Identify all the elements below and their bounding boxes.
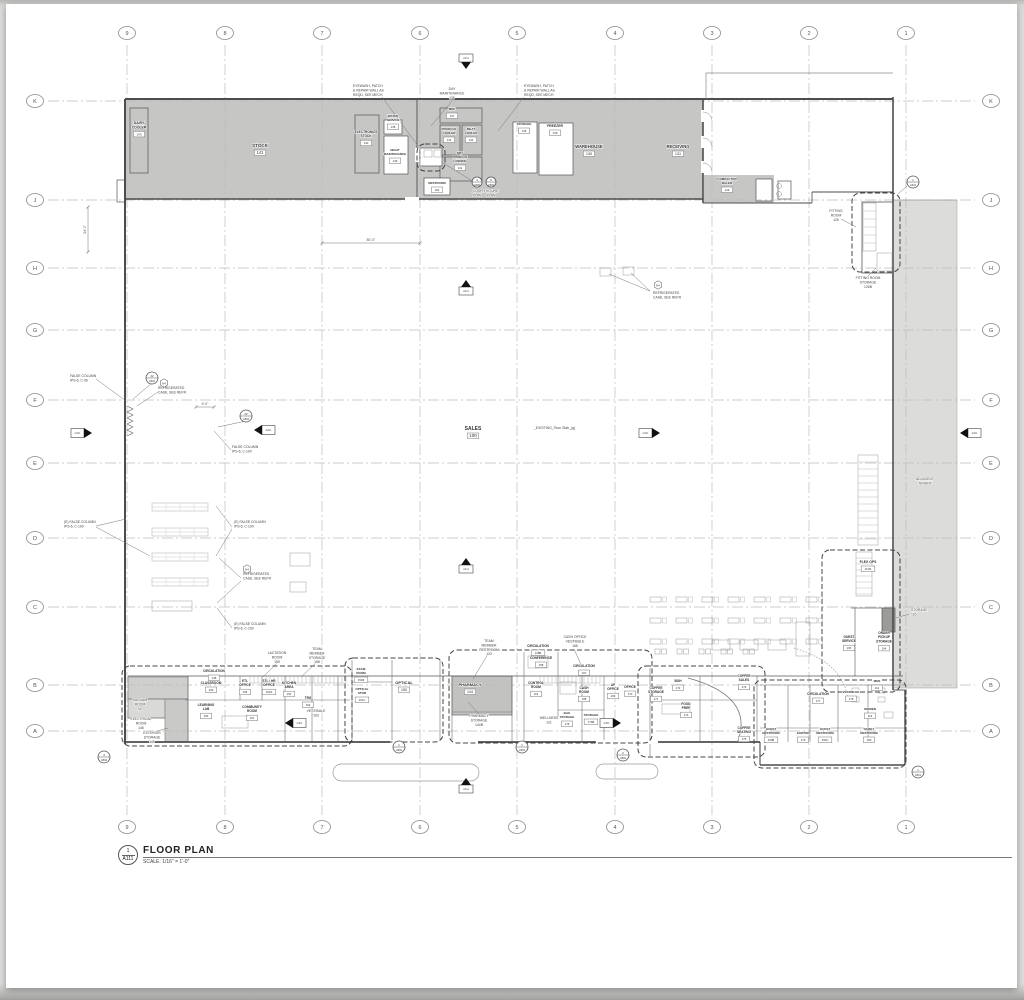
room-number: 174	[742, 685, 747, 689]
elevation-marker-ref: A201	[74, 431, 81, 435]
leader-line	[216, 529, 232, 556]
checklane-fixture	[754, 597, 765, 602]
room-number: 162	[306, 703, 311, 707]
elevation-marker-arrow	[285, 718, 293, 728]
grid-bubble-bottom-3-label: 3	[710, 825, 713, 831]
room-label: STORAGE	[584, 713, 599, 717]
room-label: CIRCULATION	[527, 644, 549, 648]
room-number: 145	[522, 129, 527, 133]
grid-bubble-bottom-5-label: 5	[515, 825, 518, 831]
room-number: 141	[257, 150, 265, 155]
checklane-fixture	[702, 639, 713, 644]
room-label: SEATING	[737, 730, 751, 734]
section-marker-ref: A311	[463, 289, 469, 293]
annotation-note: EYEWASH, PATCH	[524, 84, 554, 88]
drawing-scale: SCALE: 1/16" = 1'-0"	[143, 859, 1012, 865]
checklane-fixture	[702, 618, 713, 623]
annotation-note: MEMBER	[310, 651, 325, 655]
room-number: 143	[136, 132, 141, 136]
leader-line	[841, 219, 856, 227]
annotation-note: PLAN	[487, 193, 496, 197]
furniture-fixture	[740, 640, 758, 650]
furniture-fixture	[878, 697, 885, 702]
section-marker-arrow	[461, 280, 471, 287]
room-label: RESTROOM	[762, 731, 780, 735]
room-number: 175	[742, 737, 747, 741]
checklane-fixture	[715, 597, 719, 602]
annotation-note: VACUUM	[133, 698, 148, 702]
leader-line	[214, 431, 231, 450]
keynote-text: N4	[162, 381, 166, 385]
checklane-fixture	[728, 618, 739, 623]
annotation-note: FITTING ROOM	[856, 276, 881, 280]
room-label: VESTIBULE	[843, 690, 860, 694]
room-label: RESTROOM	[816, 731, 834, 735]
annotation-note: CASE, SEE REFR	[158, 390, 187, 394]
annotation-note: 166	[572, 644, 578, 648]
elevation-marker-arrow	[254, 425, 262, 435]
detail-callout-sheet: A502	[620, 756, 627, 760]
grid-bubble-top-6-label: 6	[418, 31, 421, 37]
annotation-note: & REPAIR WALL AS	[353, 88, 385, 92]
detail-callout-sheet: A341	[910, 183, 917, 187]
wall-opening	[596, 740, 658, 744]
area-fill	[130, 108, 148, 173]
room-number: 135	[552, 131, 557, 135]
room-label: STORAGE	[517, 122, 532, 126]
checklane-fixture	[689, 597, 693, 602]
room-number: 133	[447, 138, 452, 142]
queue-fixture	[706, 649, 711, 654]
room-label: FLEX OPS	[860, 560, 878, 564]
leader-line	[218, 421, 246, 427]
room-label: STOCK	[252, 143, 268, 148]
detail-callout-number: 22	[150, 374, 154, 378]
room-label: STORAGE	[560, 715, 575, 719]
checklane-fixture	[767, 597, 771, 602]
grid-bubble-bottom-6-label: 6	[418, 825, 421, 831]
grid-bubble-left-D-label: D	[33, 536, 37, 542]
checklane-fixture	[650, 639, 661, 644]
checklane-fixture	[715, 618, 719, 623]
detail-number: 1	[127, 849, 130, 854]
detail-callout-sheet: A502	[149, 379, 156, 383]
annotation-note: IPS-6, C-100	[234, 524, 254, 528]
dimension-text: 34'-0"	[83, 224, 87, 233]
grid-bubble-right-G-label: G	[989, 328, 993, 334]
checklane-fixture	[689, 639, 693, 644]
furniture-fixture	[884, 712, 893, 718]
room-number: 129	[725, 188, 730, 192]
grid-bubble-top-1-label: 1	[904, 31, 907, 37]
scale-label: SCALE:	[143, 859, 161, 865]
checklane-fixture	[754, 618, 765, 623]
room-label: SERVICE	[842, 639, 856, 643]
queue-fixture	[699, 649, 704, 654]
area-fill	[894, 200, 957, 688]
room-number: 165	[847, 646, 852, 650]
checklane-fixture	[780, 597, 791, 602]
checklane-fixture	[728, 597, 739, 602]
annotation-note: WELLNESS	[540, 716, 559, 720]
room-label: CLASSROOM	[201, 681, 222, 685]
room-label: PREP	[682, 706, 692, 710]
room-label: LAB	[203, 707, 210, 711]
room-number: 164	[882, 646, 887, 650]
room-number: 169	[611, 694, 616, 698]
queue-fixture	[662, 649, 667, 654]
leader-line	[217, 581, 241, 603]
annotation-note: PLAN	[473, 193, 482, 197]
room-number: 171	[654, 697, 659, 701]
annotation-note: _EXISTING_Floor Slab_(g)	[533, 426, 575, 430]
annotation-note: 159	[274, 660, 280, 664]
room-label: LANDING	[453, 159, 467, 163]
grid-bubble-right-B-label: B	[989, 683, 993, 689]
grid-bubble-bottom-9-label: 9	[125, 825, 128, 831]
grid-bubble-left-H-label: H	[33, 266, 37, 272]
annotation-note: VESTIBULE	[566, 639, 585, 643]
room-number: 167	[582, 671, 587, 675]
room-label: OPTICAL	[395, 680, 413, 685]
grid-bubble-top-9-label: 9	[125, 31, 128, 37]
title-block: 1 A111 FLOOR PLAN SCALE: 1/16" = 1'-0"	[118, 845, 1012, 865]
room-number: 110S	[865, 567, 872, 571]
grid-bubble-left-B-label: B	[33, 683, 37, 689]
detail-callout-number: 22	[244, 412, 248, 416]
room-number: 176	[565, 722, 570, 726]
detail-callout-sheet: A500	[474, 183, 481, 187]
area-fill	[862, 202, 893, 273]
elevation-marker-arrow	[652, 428, 660, 438]
leader-line	[96, 527, 150, 556]
room-number: 112	[875, 686, 880, 690]
annotation-note: ROOM	[135, 702, 146, 706]
detail-callout-sheet: A502	[243, 417, 250, 421]
annotation-note: 146	[138, 726, 144, 730]
room-number: 151B	[358, 678, 365, 682]
annotation-note: 121	[546, 720, 552, 724]
room-label: COOLER	[443, 131, 457, 135]
leader-line	[133, 383, 152, 399]
leader-line	[219, 558, 241, 578]
room-label: MEN	[874, 679, 881, 683]
elevation-marker-arrow	[960, 428, 968, 438]
annotation-note: ADJACENT	[916, 477, 934, 481]
room-number: 180	[867, 738, 872, 742]
room-number: 140	[364, 141, 369, 145]
room-label: TRG	[305, 696, 312, 700]
leader-line	[216, 506, 232, 527]
annotation-note: FITTING	[829, 209, 843, 213]
room-label: JANITOR	[796, 731, 810, 735]
room-label: OFFICE	[263, 683, 275, 687]
keynote-text: N4	[656, 283, 660, 287]
room-number: 179	[801, 738, 806, 742]
room-number: 176B	[588, 720, 595, 724]
annotation-note: EXTERIOR	[143, 731, 161, 735]
checklane-fixture	[676, 597, 687, 602]
queue-fixture	[655, 649, 660, 654]
annotation-note: LACTATION	[268, 651, 287, 655]
leader-line	[631, 273, 650, 291]
grid-bubble-left-J-label: J	[34, 198, 37, 204]
room-label: FREEZER	[547, 124, 563, 128]
annotation-note: 147	[137, 707, 143, 711]
room-number: 154A	[266, 690, 273, 694]
room-number: 137	[450, 114, 455, 118]
leader-line	[301, 662, 317, 677]
annotation-note: ELECTRICAL	[131, 717, 152, 721]
annotation-note: VESTIBULE	[307, 709, 326, 713]
annotation-note: REFRIGERATED	[158, 386, 185, 390]
annotation-note: MAINTENANCE	[440, 91, 465, 95]
room-number: 151C	[359, 698, 366, 702]
annotation-note: REFRIGERATED	[653, 291, 680, 295]
scale-value: 1/16" = 1'-0"	[162, 859, 189, 865]
checklane-fixture	[689, 618, 693, 623]
checklane-fixture	[806, 597, 817, 602]
annotation-note: 136	[449, 96, 455, 100]
room-label: STORAGE	[876, 639, 892, 643]
furniture-fixture	[222, 716, 248, 728]
room-number: 151	[287, 692, 292, 696]
elevation-marker-ref: A201	[971, 431, 978, 435]
room-number: 155	[243, 690, 248, 694]
elevation-marker-arrow	[84, 428, 92, 438]
checklane-fixture	[650, 597, 661, 602]
annotation-note: IPS-6, C-100	[234, 626, 254, 630]
room-number: 170	[628, 692, 633, 696]
section-marker-ref: A311	[463, 787, 469, 791]
room-label: RECEIVING	[666, 144, 689, 149]
area-fill	[117, 180, 125, 202]
annotation-note: 126B	[864, 285, 873, 289]
room-number: 144	[467, 690, 473, 694]
furniture-fixture	[290, 553, 310, 566]
grid-bubble-top-5-label: 5	[515, 31, 518, 37]
rack-fixture	[858, 455, 878, 545]
area-fill	[128, 677, 188, 699]
detail-callout-sheet: A500	[488, 183, 495, 187]
leader-line	[96, 379, 126, 401]
elevation-marker-ref: A401	[296, 721, 303, 725]
room-number: 152	[435, 188, 440, 192]
checklane-fixture	[650, 618, 661, 623]
leader-line	[473, 654, 488, 679]
leader-line	[137, 392, 158, 406]
room-label: RESTROOM	[860, 731, 878, 735]
elevation-marker-ref: A401	[603, 721, 610, 725]
annotation-note: TEAM	[484, 639, 494, 643]
room-label: SERVICE	[386, 118, 399, 122]
grid-bubble-bottom-2-label: 2	[807, 825, 810, 831]
room-number: 130	[586, 152, 592, 156]
room-label: OFFICE	[239, 683, 251, 687]
checklane-fixture	[676, 639, 687, 644]
annotation-note: MEMBER	[482, 643, 497, 647]
furniture-fixture	[768, 640, 786, 650]
room-label: CONFERENCE	[530, 656, 552, 660]
furniture-fixture	[712, 640, 730, 650]
annotation-note: 163	[313, 713, 319, 717]
grid-bubble-top-4-label: 4	[613, 31, 616, 37]
room-number: 132	[458, 166, 463, 170]
detail-path	[794, 648, 848, 698]
room-label: WOMEN	[864, 707, 876, 711]
rack-fixture	[856, 552, 872, 596]
room-number: 100	[469, 433, 477, 438]
room-label: OFFICE	[607, 687, 619, 691]
section-marker-arrow	[461, 778, 471, 785]
annotation-note: ROOM	[272, 655, 283, 659]
room-label: ROOM	[247, 709, 257, 713]
grid-bubble-bottom-8-label: 8	[223, 825, 226, 831]
room-label: STOCK	[360, 134, 372, 138]
annotation-note: STORAGE	[471, 718, 488, 722]
checklane-fixture	[663, 618, 667, 623]
furniture-fixture	[600, 268, 611, 276]
room-number: 178	[849, 697, 854, 701]
leader-line	[263, 663, 277, 677]
room-number: 158	[539, 663, 544, 667]
checklane-fixture	[663, 639, 667, 644]
annotation-note: STORAGE	[911, 608, 928, 612]
room-label: STORAGE	[648, 690, 664, 694]
checklane-fixture	[793, 597, 797, 602]
grid-bubble-left-C-label: C	[33, 605, 37, 611]
annotation-note: 116	[911, 612, 917, 616]
grid-bubble-right-K-label: K	[989, 99, 993, 105]
annotation-note: STORAGE	[144, 735, 161, 739]
section-marker-ref: A311	[463, 56, 469, 60]
annotation-note: FLOOR	[471, 189, 483, 193]
queue-fixture	[684, 649, 689, 654]
dimension-text: 5'-0"	[202, 402, 210, 406]
checklane-fixture	[741, 597, 745, 602]
annotation-note: & REPAIR WALL AS	[524, 88, 556, 92]
grid-bubble-right-E-label: E	[989, 461, 993, 467]
room-label: ROOM	[356, 671, 366, 675]
annotation-note: 158	[314, 660, 320, 664]
room-number: 119	[534, 692, 539, 696]
room-number: 148	[212, 676, 217, 680]
room-label: AREA	[284, 685, 294, 689]
checklane-fixture	[780, 618, 791, 623]
room-label: CIRCULATION	[807, 692, 829, 696]
room-number: 156	[209, 688, 214, 692]
annotation-note: PHARMACY	[469, 714, 489, 718]
annotation-note: FIXTURE	[484, 189, 499, 193]
annotation-note: IPS-6, C-100	[232, 449, 252, 453]
detail-callout-sheet: A502	[396, 748, 403, 752]
area-fill	[756, 179, 772, 201]
section-marker-arrow	[461, 62, 471, 69]
annotation-note: (E) FALSE COLUMN	[234, 622, 266, 626]
room-label: BOH	[674, 679, 682, 683]
furniture-fixture	[290, 582, 306, 592]
dimension-text: 80'-0"	[367, 238, 376, 242]
grid-bubble-right-H-label: H	[989, 266, 993, 272]
room-number: 173	[684, 713, 689, 717]
room-number: 177	[816, 699, 821, 703]
annotation-note: EYEWASH, PATCH	[353, 84, 383, 88]
furniture-fixture	[560, 682, 576, 694]
room-label: SALES	[739, 678, 750, 682]
grid-bubble-right-A-label: A	[989, 729, 993, 735]
checklane-fixture	[663, 597, 667, 602]
room-label: COOLER	[465, 131, 479, 135]
wall-opening	[405, 197, 419, 201]
room-label: MDF	[449, 107, 456, 111]
grid-bubble-left-K-label: K	[33, 99, 37, 105]
grid-bubble-bottom-4-label: 4	[613, 825, 616, 831]
furniture-fixture	[152, 601, 192, 611]
annotation-note: STORAGE	[309, 656, 326, 660]
elevation-marker-ref: A201	[265, 428, 272, 432]
annotation-note: FALSE COLUMN	[70, 374, 97, 378]
annotation-note: 149	[149, 740, 155, 744]
room-label: WAREHOUSE	[575, 144, 603, 149]
room-label: MAINTENANCE	[384, 152, 406, 156]
room-label: CIRCULATION	[203, 669, 225, 673]
room-number: 113	[868, 714, 873, 718]
annotation-note: CASE, SEE REFR	[243, 576, 272, 580]
room-label: STOR	[358, 691, 367, 695]
annotation-note: TEAM	[312, 647, 322, 651]
annotation-note: IPS-6, C-100	[64, 524, 84, 528]
grid-bubble-top-3-label: 3	[710, 31, 713, 37]
checklane-fixture	[806, 639, 817, 644]
room-label: OFFICE	[624, 685, 636, 689]
room-label: BALER	[722, 181, 733, 185]
room-number: 153	[204, 714, 209, 718]
grid-bubble-top-8-label: 8	[223, 31, 226, 37]
room-number: 150C	[822, 738, 829, 742]
detail-reference-bubble: 1 A111	[118, 845, 138, 865]
queue-fixture	[677, 649, 682, 654]
annotation-note: 126	[833, 218, 839, 222]
annotation-note: TENANT	[918, 481, 932, 485]
room-label: PHARMACY	[458, 682, 481, 687]
detail-callout-sheet: A502	[519, 748, 526, 752]
checklane-fixture	[741, 618, 745, 623]
annotation-note: RESTROOM	[479, 648, 499, 652]
room-number: 131	[675, 152, 681, 156]
room-label: ROOM	[579, 690, 589, 694]
room-number: 139	[393, 159, 398, 163]
room-number: 157	[250, 716, 255, 720]
annotation-note: 123	[486, 652, 492, 656]
room-number: 150B	[768, 738, 775, 742]
annotation-note: IPS-6, C-06	[70, 378, 88, 382]
room-label: DAIRY	[134, 121, 145, 125]
annotation-note: CASE, SEE REFR	[653, 295, 682, 299]
annotation-note: STORAGE	[860, 280, 877, 284]
canopy-pill	[333, 764, 479, 781]
annotation-note: (E) FALSE COLUMN	[234, 520, 266, 524]
room-label: CIRCULATION	[573, 664, 595, 668]
annotation-note: FALSE COLUMN	[232, 445, 259, 449]
sheet-number: A111	[123, 857, 134, 862]
grid-bubble-right-J-label: J	[990, 198, 993, 204]
detail-path	[127, 406, 133, 436]
room-number: 138	[391, 125, 396, 129]
grid-bubble-left-A-label: A	[33, 729, 37, 735]
leader-line	[96, 519, 126, 526]
section-marker-ref: A311	[463, 567, 469, 571]
grid-bubble-top-7-label: 7	[320, 31, 323, 37]
